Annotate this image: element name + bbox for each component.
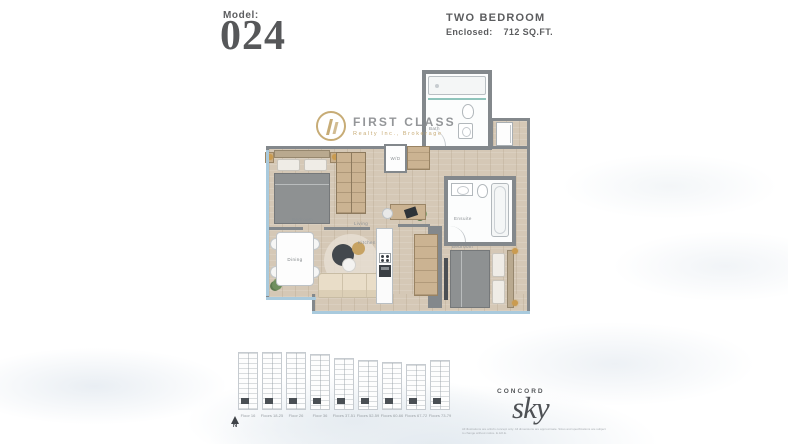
keyplan-item: Floors 37-51 — [334, 358, 354, 418]
ensuite-bathroom: Ensuite — [444, 176, 516, 246]
bedroom1-label: Bedroom — [292, 217, 313, 222]
brokerage-name: FIRST CLASS — [353, 115, 456, 129]
unit-type: TWO BEDROOM — [446, 12, 545, 24]
enclosed-area: Enclosed: 712 SQ.FT. — [446, 27, 553, 37]
sink-icon — [451, 183, 473, 196]
keyplan-item: Floors 52-59 — [358, 360, 378, 418]
unit-marker — [313, 398, 321, 404]
window-wall-left — [266, 150, 269, 296]
dining-label: Dining — [287, 257, 302, 262]
door-swing-icon — [450, 226, 466, 242]
lamp-icon — [512, 300, 518, 306]
lamp-icon — [512, 248, 518, 254]
bedroom1-closet — [336, 152, 366, 214]
bathtub-icon — [491, 183, 509, 237]
keyplan-item: Floor 36 — [310, 354, 330, 418]
brokerage-subtitle: Realty Inc., Brokerage — [353, 131, 456, 137]
bed-icon-bedroom2 — [450, 250, 514, 308]
brokerage-logo-icon — [316, 111, 346, 141]
keyplan-strip: Floor 16 Floors 18-25 Floor 26 Floor 36 … — [238, 352, 450, 418]
brand-sky: sky — [512, 395, 549, 421]
unit-marker — [409, 398, 417, 404]
unit-marker — [289, 398, 297, 404]
keyplan-item: Floor 16 — [238, 352, 258, 418]
keyplan-thumbnail — [382, 362, 402, 410]
keyplan-item: Floors 73-79 — [430, 360, 450, 418]
keyplan-label: Floor 26 — [289, 413, 304, 418]
enclosed-value: 712 SQ.FT. — [504, 27, 554, 37]
keyplan-label: Floors 52-59 — [357, 413, 379, 418]
keyplan-label: Floors 60-66 — [381, 413, 403, 418]
unit-marker — [361, 398, 369, 404]
unit-marker — [385, 398, 393, 404]
enclosed-label: Enclosed: — [446, 27, 493, 37]
keyplan-label: Floors 37-51 — [333, 413, 355, 418]
keyplan-thumbnail — [406, 364, 426, 410]
unit-marker — [241, 398, 249, 404]
bedroom2-label: Bedroom — [452, 244, 473, 249]
bench-icon — [444, 258, 448, 300]
wd-label: W/D — [391, 156, 401, 161]
keyplan-thumbnail — [358, 360, 378, 410]
unit-marker — [337, 398, 345, 404]
oven-icon — [379, 265, 391, 277]
keyplan-item: Floors 67-72 — [406, 364, 426, 418]
keyplan-label: Floor 36 — [313, 413, 328, 418]
keyplan-item: Floor 26 — [286, 352, 306, 418]
keyplan-thumbnail — [310, 354, 330, 410]
window-wall-bottom — [266, 297, 316, 300]
brokerage-watermark: FIRST CLASS Realty Inc., Brokerage — [316, 106, 476, 146]
desk-chair-icon — [382, 208, 393, 219]
keyplan-thumbnail — [262, 352, 282, 410]
bathtub-icon — [428, 76, 486, 95]
cooktop-icon — [379, 253, 391, 263]
unit-marker — [265, 398, 273, 404]
bed-icon-bedroom1 — [274, 150, 330, 224]
window-wall-bottom — [312, 311, 530, 314]
keyplan-label: Floor 16 — [241, 413, 256, 418]
dining-table-icon: Dining — [276, 232, 314, 286]
entry-door — [496, 122, 513, 146]
keyplan-thumbnail — [430, 360, 450, 410]
unit-marker — [433, 398, 441, 404]
keyplan-item: Floors 18-25 — [262, 352, 282, 418]
washer-dryer: W/D — [384, 144, 407, 173]
keyplan-label: Floors 18-25 — [261, 413, 283, 418]
disclaimer-text: All illustrations are artist's concept o… — [462, 427, 614, 435]
floorplan-sheet: Model: 024 TWO BEDROOM Enclosed: 712 SQ.… — [0, 0, 788, 444]
keyplan-label: Floors 73-79 — [429, 413, 451, 418]
kitchen-counter — [376, 228, 393, 304]
kitchen-cabinets — [414, 234, 438, 296]
keyplan-thumbnail — [334, 358, 354, 410]
kitchen-label: Kitchen — [358, 240, 376, 245]
keyplan-item: Floors 60-66 — [382, 362, 402, 418]
ensuite-label: Ensuite — [454, 216, 472, 221]
keyplan-thumbnail — [286, 352, 306, 410]
keyplan-thumbnail — [238, 352, 258, 410]
laptop-icon — [404, 206, 418, 218]
hall-cabinet — [407, 146, 430, 170]
side-table-icon — [342, 258, 356, 272]
concord-sky-logo: CONCORD sky — [497, 388, 549, 421]
keyplan-label: Floors 67-72 — [405, 413, 427, 418]
toilet-icon — [477, 184, 488, 198]
living-label: Living — [354, 221, 368, 226]
desk-icon — [390, 204, 426, 220]
model-number: 024 — [220, 12, 286, 60]
